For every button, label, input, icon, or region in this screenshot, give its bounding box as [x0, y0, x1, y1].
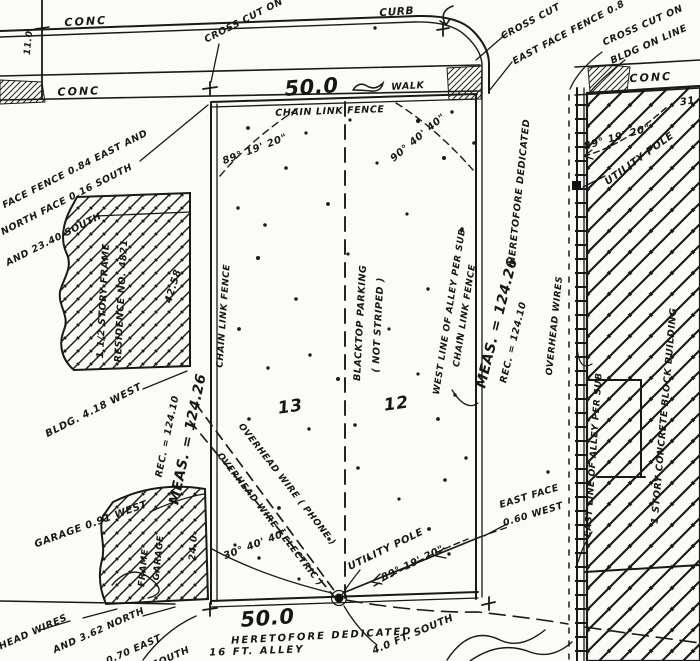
sw-leader-3 [143, 607, 175, 616]
se-swirl-2 [470, 642, 572, 661]
label-chain-link-west: CHAIN LINK FENCE [215, 263, 232, 368]
label-alley-16: 16 FT. ALLEY [209, 644, 305, 658]
cross-cut-leader-left [211, 44, 219, 82]
walk-hatch-patch-right [588, 66, 630, 93]
label-south-clip: SOUTH [150, 645, 191, 661]
frame-residence [60, 105, 208, 389]
label-south-dim-50: 50.0 [240, 604, 296, 632]
utility-pole-symbol-east [572, 181, 581, 190]
se-swirl-1 [447, 630, 545, 660]
survey-plat-page: CONC CROSS CUT ON CURB 50.0 WALK CONC 11… [0, 0, 700, 661]
curb-corner-arrow [440, 6, 453, 25]
label-chain-link-top: CHAIN LINK FENCE [275, 104, 385, 119]
cross-mark-walk-west [203, 82, 217, 95]
walk-squiggle [353, 83, 383, 91]
sw-leader-2 [83, 609, 117, 618]
label-conc-right: CONC [629, 70, 672, 85]
label-bldg-west: BLDG. 4.18 WEST [44, 381, 145, 440]
label-lot-13: 13 [277, 395, 304, 418]
alley-linework [452, 88, 605, 661]
label-front-dim: 50.0 [284, 73, 340, 101]
overhead-wires-south [190, 404, 508, 606]
label-lot-12: 12 [383, 392, 410, 415]
label-meas-west: MEAS. = 124.26 [166, 372, 209, 506]
label-east-070: 0.70 EAST [105, 632, 164, 661]
label-angle-sw: 30° 40' 40" [222, 527, 290, 562]
fence-note-leader [140, 105, 208, 161]
walk-top-line [0, 65, 480, 76]
label-angle-nw: 89° 19' 20" [221, 132, 289, 167]
walk-hatch-patch-left [0, 80, 45, 104]
walk-top-line-east [575, 60, 700, 67]
label-blacktop-1: BLACKTOP PARKING [352, 264, 369, 381]
label-offset-11: 11.0 [23, 30, 36, 56]
label-conc-walk: CONC [57, 84, 100, 98]
arc-ne [396, 103, 473, 170]
east-fence-leader [489, 62, 512, 91]
label-heretofore-alley: HERETOFORE DEDICATED [506, 118, 532, 265]
bldg-west-leader [143, 371, 187, 389]
label-blacktop-2: ( NOT STRIPED ) [371, 277, 387, 373]
label-conc-top: CONC [64, 14, 107, 29]
label-curb: CURB [379, 5, 414, 19]
label-garage-dim: 24.0 [187, 535, 200, 562]
survey-drawing: CONC CROSS CUT ON CURB 50.0 WALK CONC 11… [0, 0, 700, 661]
label-walk: WALK [391, 80, 425, 93]
cross-mark-sw [203, 603, 217, 616]
west-alley-label-leader [452, 390, 478, 406]
cross-mark-se [482, 597, 495, 610]
label-oh-wires-alley: OVERHEAD WIRES [545, 276, 565, 376]
